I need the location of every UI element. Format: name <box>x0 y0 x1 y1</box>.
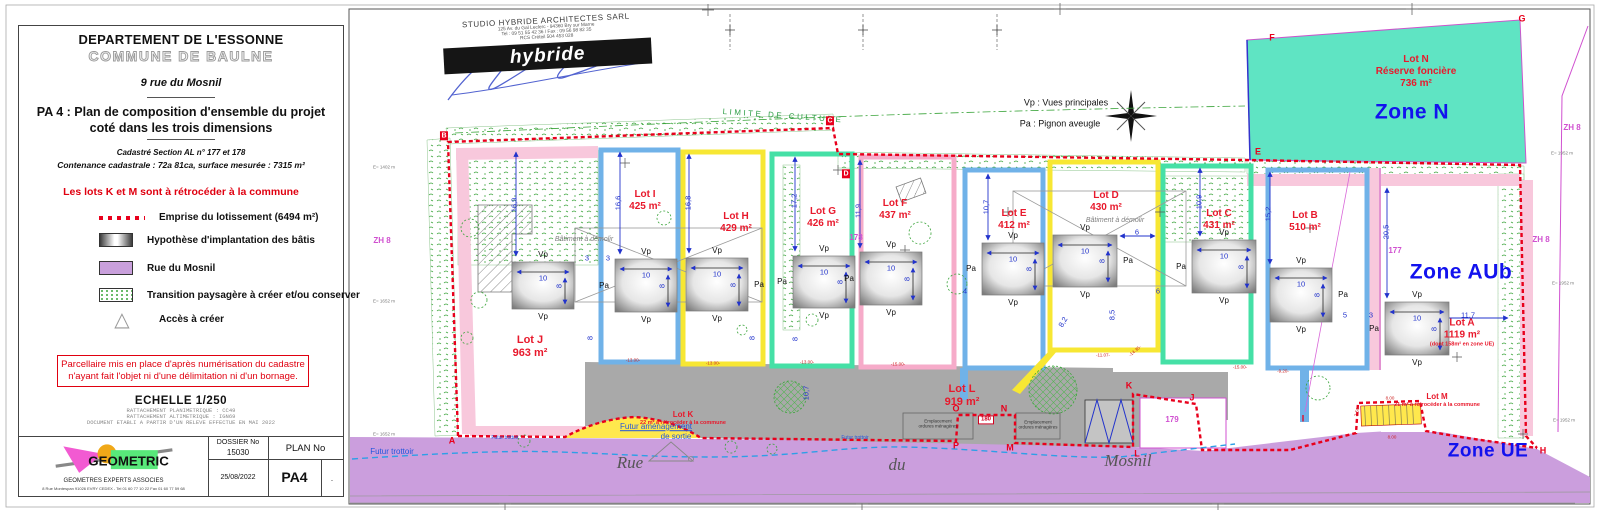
vertex-letter-D: D <box>842 169 850 178</box>
document-note: DOCUMENT ETABLI A PARTIR D'UN RELEVE EFF… <box>19 419 343 426</box>
emplacement-ordures-label: Emplacement ordures ménagères <box>918 419 957 430</box>
grid-coordinate: E= 1402 m <box>373 164 395 169</box>
vp-label: Vp <box>641 315 651 325</box>
dimension-label: 4 <box>963 287 967 296</box>
department-title: DEPARTEMENT DE L'ESSONNE <box>19 32 343 47</box>
dimension-label: 20,5 <box>1382 225 1391 240</box>
dimension-label: -9.20- <box>1277 368 1289 373</box>
vp-label: Vp <box>1219 296 1229 306</box>
dimension-label: -13.00- <box>800 359 814 364</box>
lot-note: 21 m² à rétrocéder à la commune <box>1394 402 1480 409</box>
building-width: 10 <box>1009 255 1017 264</box>
building-width: 10 <box>539 274 547 283</box>
plan-sheet: LIMITE DE CULTUREVp : Vues principalesPa… <box>0 0 1600 512</box>
dimension-label: 11,9 <box>854 204 863 218</box>
geometric-logo: GEOMETRIC <box>29 440 199 478</box>
dimension-label: 8.00 <box>1388 434 1397 439</box>
lot-note: (dont 158m² en zone UE) <box>1430 342 1494 349</box>
cadastre-disclaimer: Parcellaire mis en place d'après numéris… <box>57 355 309 387</box>
plan-number: PA4 <box>268 469 321 485</box>
dimension-label: -13.00- <box>706 360 720 365</box>
vegetation-swatch <box>99 288 133 302</box>
scale-label: ECHELLE 1/250 <box>19 395 343 407</box>
vp-label: Vp <box>1219 228 1229 238</box>
building-depth: 8 <box>1098 259 1107 263</box>
vp-label: Vp <box>1008 231 1018 241</box>
compass-rose <box>1105 90 1157 142</box>
vp-label: Vp <box>641 247 651 257</box>
pa-label: Pa <box>1369 324 1379 334</box>
vp-label: Vp <box>712 314 722 324</box>
building-width: 10 <box>887 264 895 273</box>
vp-label: Vp <box>538 250 548 260</box>
pa-label: Pa <box>777 277 787 287</box>
parcel-178-label: 178 <box>849 233 862 243</box>
lot-label: Lot G 426 m² <box>807 206 839 230</box>
vertex-letter-L: L <box>1134 449 1140 460</box>
titleblock-divider <box>18 436 344 437</box>
building-depth: 8 <box>729 282 738 286</box>
street-swatch <box>99 261 133 275</box>
legend-label: Hypothèse d'implantation des bâtis <box>147 235 315 246</box>
parcel-179-label: 179 <box>1165 415 1178 425</box>
dimension-label: 3 <box>585 254 589 263</box>
building-depth: 8 <box>1237 264 1246 268</box>
vertex-letter-N: N <box>1001 404 1008 415</box>
zh8-label: ZH 8 <box>1563 123 1580 133</box>
zone-label: Zone N <box>1375 99 1449 124</box>
vertex-letter-P: P <box>953 441 959 452</box>
building-width: 10 <box>1220 252 1228 261</box>
street-name: Rue <box>617 453 643 473</box>
dimension-label: 16,6 <box>614 196 623 211</box>
zh8-label: ZH 8 <box>373 236 390 246</box>
pa-label: Pa <box>1338 290 1348 300</box>
legend-row-emprise: Emprise du lotissement (6494 m²) <box>99 212 337 223</box>
lot-label: Lot E 412 m² <box>998 208 1030 232</box>
zh8-label: ZH 8 <box>1532 235 1549 245</box>
zone-n-area <box>1247 20 1526 163</box>
dimension-label: 10,7 <box>802 386 811 401</box>
batiment-a-demolir-label: Bâtiment à démolir <box>1086 217 1144 225</box>
parcel-177-label: 177 <box>1388 246 1401 256</box>
dimension-label: 8 <box>748 336 757 340</box>
futur-trottoir-label: Futur trottoir <box>491 435 518 441</box>
vp-label: Vp <box>819 311 829 321</box>
grid-coordinate: E= 1952 m <box>1551 150 1573 155</box>
street-name: du <box>889 455 906 475</box>
firm-subtitle: GEOMETRES EXPERTS ASSOCIES <box>19 478 208 484</box>
pa-legend: Pa : Pignon aveugle <box>1020 119 1101 130</box>
dimension-label: -13.00- <box>626 357 640 362</box>
legend-row-transition: Transition paysagère à créer et/ou conse… <box>99 288 337 302</box>
vp-label: Vp <box>886 308 896 318</box>
building-width: 10 <box>1297 280 1305 289</box>
building-width: 10 <box>1413 314 1421 323</box>
lot-label: Lot N Réserve foncière 736 m² <box>1376 54 1457 90</box>
lot-label: Lot I 425 m² <box>629 189 661 213</box>
plan-title: PA 4 : Plan de composition d'ensemble du… <box>19 105 343 136</box>
emprise-dotted-swatch <box>99 216 145 220</box>
divider <box>147 97 215 98</box>
vp-label: Vp <box>1080 290 1090 300</box>
vertex-letter-C: C <box>826 116 834 125</box>
emplacement-ordures-label: Emplacement ordures ménagères <box>1018 420 1057 431</box>
dimension-label: 16,8 <box>684 196 693 211</box>
building-width: 10 <box>713 270 721 279</box>
dimension-label: 8,5 <box>1108 310 1117 320</box>
dimension-label: 15,2 <box>1264 207 1273 222</box>
legend-label: Emprise du lotissement (6494 m²) <box>159 212 319 223</box>
parcel-180-label: 180 <box>978 415 994 424</box>
plan-date: 25/08/2022 <box>208 474 268 481</box>
firm-address: 8 Rue Montespan 91026 EVRY CEDEX - Tel 0… <box>19 486 208 491</box>
vertex-letter-B: B <box>440 131 448 140</box>
vp-label: Vp <box>1412 290 1422 300</box>
vp-label: Vp <box>1008 298 1018 308</box>
dimension-label: -11.07- <box>1096 352 1110 357</box>
dimension-label: -15.00- <box>891 361 905 366</box>
pa-label: Pa <box>754 280 764 290</box>
vp-label: Vp <box>1296 256 1306 266</box>
vp-label: Vp <box>712 246 722 256</box>
grid-coordinate: E= 1952 m <box>1553 417 1575 422</box>
svg-text:GEOMETRIC: GEOMETRIC <box>88 453 169 468</box>
vp-label: Vp <box>1080 223 1090 233</box>
info-panel: DEPARTEMENT DE L'ESSONNE COMMUNE DE BAUL… <box>18 25 344 497</box>
futur-trottoir-label: Futur trottoir <box>841 435 868 441</box>
vertex-letter-I: I <box>1302 414 1305 425</box>
dossier-number: 15030 <box>208 448 268 457</box>
building-width: 10 <box>642 271 650 280</box>
dimension-label: 16,9 <box>510 198 519 213</box>
building-depth: 8 <box>903 276 912 280</box>
zone-label: Zone AUb <box>1410 259 1512 284</box>
legend-label: Accès à créer <box>159 314 224 325</box>
project-address: 9 rue du Mosnil <box>19 77 343 89</box>
vertex-letter-F: F <box>1269 33 1275 44</box>
street-name: Mosnil <box>1104 451 1151 471</box>
dimension-label: 17,2 <box>790 194 799 209</box>
futur-trottoir-label: Futur trottoir <box>370 447 414 457</box>
plan-no-label: PLAN No <box>268 443 343 454</box>
lot-label: Lot F 437 m² <box>879 198 911 222</box>
lot-label: Lot K22 m² à rétrocéder à la commune <box>640 410 726 426</box>
retrocession-note: Les lots K et M sont à rétrocéder à la c… <box>19 186 343 198</box>
building-footprint-6 <box>1053 235 1117 287</box>
futur-amenagement-label: de sortie <box>661 432 692 442</box>
building-depth: 8 <box>555 283 564 287</box>
building-width: 10 <box>820 268 828 277</box>
building-footprint-7 <box>1192 240 1256 293</box>
vertex-letter-A: A <box>449 436 456 447</box>
vertex-letter-M: M <box>1006 443 1014 454</box>
building-depth: 8 <box>1025 267 1034 271</box>
divider <box>147 139 215 140</box>
vp-label: Vp <box>886 240 896 250</box>
lot-label: Lot H 429 m² <box>720 211 752 235</box>
vertex-letter-J: J <box>1189 393 1194 404</box>
dimension-label: 6 <box>1156 287 1160 296</box>
pa-label: Pa <box>966 264 976 274</box>
dimension-label: 5 <box>1343 311 1347 320</box>
grid-coordinate: E= 1952 m <box>1552 280 1574 285</box>
access-triangle-icon: △ <box>99 313 145 325</box>
lot-label: Lot L 919 m² <box>945 383 980 409</box>
vertex-letter-K: K <box>1126 381 1133 392</box>
legend-label: Transition paysagère à créer et/ou conse… <box>147 290 360 301</box>
building-depth: 8 <box>1313 293 1322 297</box>
pa-label: Pa <box>1123 256 1133 266</box>
dimension-label: 3 <box>606 254 610 263</box>
legend-row-acces: △ Accès à créer <box>99 313 337 325</box>
lot-label: Lot A 1119 m²(dont 158m² en zone UE) <box>1430 318 1494 349</box>
cadastre-ref: Cadastré Section AL n° 177 et 178 <box>19 148 343 157</box>
lot-label: Lot B 510 m² <box>1289 210 1321 234</box>
grid-coordinate: E= 1652 m <box>373 431 395 436</box>
lot-note: 22 m² à rétrocéder à la commune <box>640 420 726 427</box>
pa-label: Pa <box>599 281 609 291</box>
zone-label: Zone UE <box>1448 441 1529 464</box>
dimension-label: 10,9 <box>1195 195 1204 210</box>
building-width: 10 <box>1081 247 1089 256</box>
grid-coordinate: E= 1652 m <box>373 298 395 303</box>
dimension-label: 8 <box>586 336 595 340</box>
building-swatch <box>99 233 133 247</box>
plan-revision: . <box>321 474 343 483</box>
pa-label: Pa <box>1176 262 1186 272</box>
dimension-label: 10,7 <box>982 200 991 215</box>
lot-label: Lot J 963 m² <box>513 334 548 360</box>
legend-label: Rue du Mosnil <box>147 263 215 274</box>
lot-label: Lot D 430 m² <box>1090 190 1122 214</box>
vp-legend: Vp : Vues principales <box>1024 98 1108 109</box>
commune-title: COMMUNE DE BAULNE <box>19 48 343 64</box>
contenance: Contenance cadastrale : 72a 81ca, surfac… <box>19 160 343 170</box>
dimension-label: 3 <box>1369 311 1373 320</box>
titleblock-divider <box>208 459 344 460</box>
vertex-letter-H: H <box>1540 446 1547 457</box>
legend-row-batis: Hypothèse d'implantation des bâtis <box>99 233 337 247</box>
legend-row-rue: Rue du Mosnil <box>99 261 337 275</box>
dimension-label: -15.00- <box>1233 364 1247 369</box>
dimension-label: 8 <box>791 337 800 341</box>
vp-label: Vp <box>538 312 548 322</box>
dossier-label: DOSSIER No <box>208 439 268 446</box>
building-depth: 8 <box>658 283 667 287</box>
lot-label: Lot M21 m² à rétrocéder à la commune <box>1394 392 1480 408</box>
vp-label: Vp <box>1296 325 1306 335</box>
pa-label: Pa <box>844 274 854 284</box>
building-depth: 8 <box>1430 326 1439 330</box>
plan-title-line2: coté dans les trois dimensions <box>90 121 273 135</box>
vp-label: Vp <box>1412 358 1422 368</box>
vertex-letter-E: E <box>1255 147 1261 158</box>
dimension-label: 6 <box>1135 228 1139 237</box>
vp-label: Vp <box>819 244 829 254</box>
vertex-letter-G: G <box>1518 14 1525 25</box>
plan-title-line1: PA 4 : Plan de composition d'ensemble du… <box>37 105 325 119</box>
batiment-a-demolir-label: Bâtiment à démolir <box>555 236 613 244</box>
